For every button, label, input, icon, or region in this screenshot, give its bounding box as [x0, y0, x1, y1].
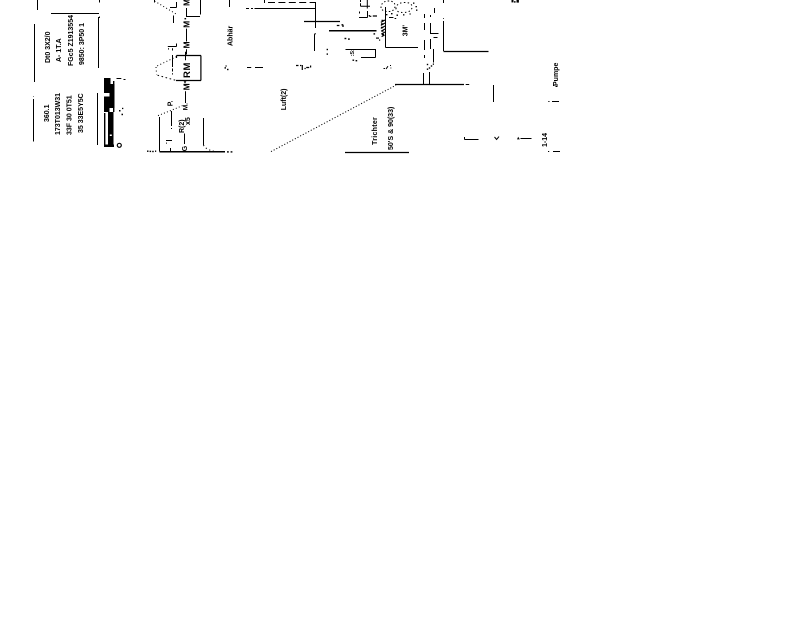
- svg-text:M: M: [182, 83, 192, 90]
- svg-text:A- 1T.A: A- 1T.A: [56, 38, 63, 62]
- svg-text:9850: 3P50 1: 9850: 3P50 1: [79, 23, 86, 65]
- svg-text:1-14: 1-14: [542, 133, 549, 147]
- svg-text:M.: M.: [183, 103, 190, 110]
- svg-text:M: M: [182, 21, 192, 28]
- svg-text:Abhär: Abhär: [228, 26, 235, 47]
- svg-text:Trichter: Trichter: [372, 117, 379, 145]
- svg-text:RM: RM: [182, 62, 193, 78]
- svg-text:360.1: 360.1: [44, 104, 51, 122]
- svg-text:Dt0 3X2/0: Dt0 3X2/0: [45, 31, 52, 63]
- svg-text::S:: :S:: [350, 49, 356, 57]
- svg-text:M: M: [182, 41, 192, 48]
- svg-text:P.: P.: [168, 101, 175, 107]
- svg-text:Pumpe: Pumpe: [553, 63, 560, 86]
- svg-text:35 33E5Y5C: 35 33E5Y5C: [78, 93, 85, 133]
- svg-text:FGc5 Z1913554: FGc5 Z1913554: [68, 15, 75, 66]
- svg-text:M: M: [182, 0, 192, 6]
- svg-text:50'S & 90(33): 50'S & 90(33): [388, 107, 395, 150]
- svg-text:x5: x5: [185, 117, 192, 125]
- svg-text:33F 30 0T51: 33F 30 0T51: [67, 95, 74, 135]
- svg-text:173T013W31: 173T013W31: [55, 93, 62, 135]
- svg-text:G: G: [182, 145, 189, 151]
- svg-text:Luft(2): Luft(2): [281, 89, 288, 111]
- svg-text:3M': 3M': [403, 25, 410, 37]
